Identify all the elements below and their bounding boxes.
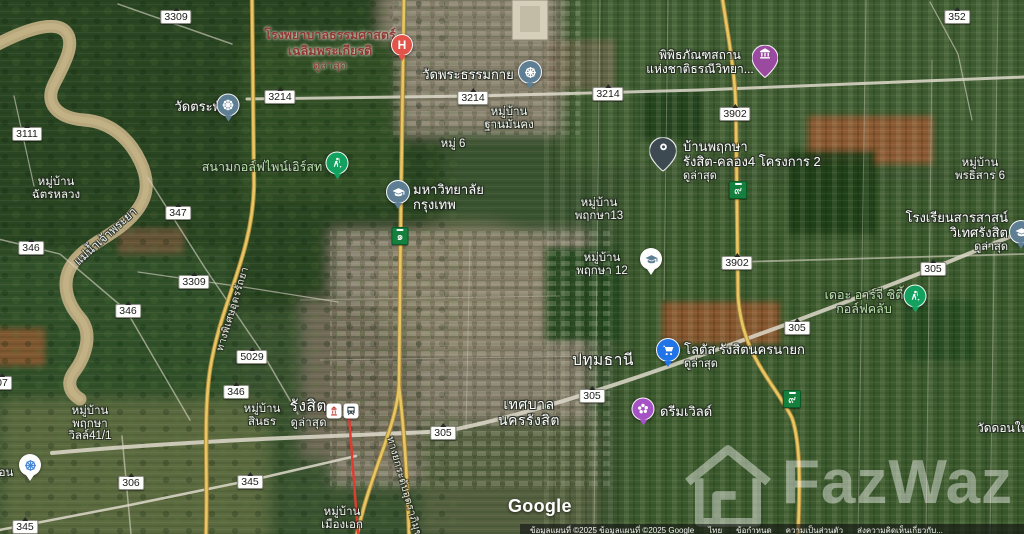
label-rg-city-golf[interactable]: เดอะ อาร์จี ซิตี้กอล์ฟคลับ (825, 288, 904, 316)
label-pinehurst-golf[interactable]: สนามกอล์ฟไพน์เอิร์สท (202, 160, 322, 174)
road-shield: 3902 (719, 107, 750, 121)
label-pornthisan-6: หมู่บ้านพรธิสาร 6 (955, 157, 1005, 182)
label-sarasas-school[interactable]: โรงเรียนสารสาสน์วิเทศรังสิตดูล่าสุด (905, 210, 1008, 255)
road-shield: 345 (12, 520, 38, 534)
road-shield: 5029 (236, 350, 267, 364)
attribution-link[interactable]: ข้อกำหนด (736, 526, 772, 534)
sarasas-school-marker[interactable] (1009, 220, 1024, 244)
cart-icon (656, 338, 680, 362)
label-rangsit-city-view-latest-link[interactable]: ดูล่าสุด (290, 415, 327, 432)
pruksa12-school-marker[interactable] (640, 248, 662, 270)
label-dream-world[interactable]: ดรีมเวิลด์ (660, 404, 712, 419)
label-pathum-thani: ปทุมธานี (572, 352, 634, 369)
wat-left-edge-marker[interactable] (19, 454, 41, 476)
road-shield: 347 (165, 206, 191, 220)
museum-marker[interactable] (752, 45, 778, 78)
label-sinthorn-village: หมู่บ้านสินธร (244, 403, 281, 428)
road-shield: 305 (579, 389, 605, 403)
road-shield: 346 (223, 385, 249, 399)
label-sarasas-school-view-latest-link[interactable]: ดูล่าสุด (905, 240, 1008, 255)
road-shield: 305 (784, 321, 810, 335)
label-thammasat-hospital[interactable]: โรงพยาบาลธรรมศาสตร์เฉลิมพระเกียรติดูล่าส… (264, 28, 395, 75)
dream-world-marker[interactable] (632, 398, 655, 421)
label-baan-pruksa-rangsit-view-latest-link[interactable]: ดูล่าสุด (683, 169, 821, 184)
label-rangsit-municipality: เทศบาลนครรังสิต (498, 396, 560, 428)
graduation-cap-icon (1009, 220, 1024, 244)
baan-pruksa-pin-marker[interactable] (650, 137, 677, 171)
google-logo[interactable]: Google (508, 496, 572, 517)
hospital-marker[interactable]: H (391, 34, 413, 56)
train-icon (344, 404, 359, 419)
dharma-wheel-icon (217, 94, 240, 117)
road-shield: 3309 (160, 10, 191, 24)
rangsit-shrine-marker[interactable] (327, 404, 342, 419)
road-shield: 352 (944, 10, 970, 24)
label-geology-museum[interactable]: พิพิธภัณฑสถานแห่งชาติธรณีวิทยา... (646, 49, 754, 76)
motorway-shield: ๑ (392, 227, 409, 245)
road-shield: 3214 (457, 91, 488, 105)
rg-city-golf-marker[interactable] (904, 285, 927, 308)
road-shield: 3111 (12, 127, 42, 141)
road-shield: 3309 (178, 275, 209, 289)
rangsit-station-marker[interactable] (344, 404, 359, 419)
label-moo-6: หมู่ 6 (441, 138, 466, 151)
label-lotus-rangsit-view-latest-link[interactable]: ดูล่าสุด (684, 357, 805, 372)
label-rangsit-city[interactable]: รังสิตดูล่าสุด (290, 398, 327, 432)
label-pruksa-13: หมู่บ้านพฤกษา13 (575, 197, 623, 222)
bangkok-university-marker[interactable] (386, 180, 410, 204)
attribution-link[interactable]: ไทย (708, 526, 722, 534)
golfer-icon (326, 152, 349, 175)
map-viewport[interactable]: FazWaz 330935232143214321439023111๙347๑3… (0, 0, 1024, 534)
label-lotus-rangsit[interactable]: โลตัส รังสิตนครนายกดูล่าสุด (684, 342, 805, 372)
label-baan-pruksa-rangsit[interactable]: บ้านพฤกษารังสิต-คลอง4 โครงการ 2ดูล่าสุด (683, 139, 821, 184)
road-shield: 305 (430, 426, 456, 440)
label-pruksa-ville-41-1: หมู่บ้านพฤกษาวิลล์41/1 (69, 405, 112, 443)
flower-icon (632, 398, 655, 421)
label-chat-luang: หมู่บ้านฉัตรหลวง (32, 176, 80, 201)
road-shield: 3214 (264, 90, 295, 104)
dharma-wheel-icon (518, 60, 542, 84)
label-muang-ake: หมู่บ้านเมืองเอก (321, 506, 363, 531)
road-shield: 346 (18, 241, 44, 255)
dhammakaya-temple-marker[interactable] (518, 60, 542, 84)
hospital-h-icon: H (391, 34, 413, 56)
road-shield: 346 (115, 304, 141, 318)
label-wat-don-yai[interactable]: วัดดอนใหญ่ (977, 422, 1024, 436)
pinehurst-golf-marker[interactable] (326, 152, 349, 175)
shrine-icon (327, 404, 342, 419)
road-shield: 3214 (592, 87, 623, 101)
road-shield: 3902 (721, 256, 752, 270)
label-bangkok-university[interactable]: มหาวิทยาลัยกรุงเทพ (413, 182, 484, 212)
wat-trapang-marker[interactable] (217, 94, 240, 117)
lotus-marker[interactable] (656, 338, 680, 362)
attribution-link[interactable]: ความเป็นส่วนตัว (786, 526, 843, 534)
dharma-wheel-icon (19, 454, 41, 476)
museum-icon (752, 45, 778, 78)
road-shield: 305 (920, 262, 946, 276)
label-wat-phra-dhammakaya[interactable]: วัดพระธรรมกาย (422, 67, 514, 82)
ring-icon (650, 137, 677, 171)
attribution-bar: ข้อมูลแผนที่ ©2025 ข้อมูลแผนที่ ©2025 Go… (520, 524, 1024, 534)
attribution-copyright: ข้อมูลแผนที่ ©2025 ข้อมูลแผนที่ ©2025 Go… (530, 526, 694, 534)
label-thammasat-hospital-view-latest-link[interactable]: ดูล่าสุด (264, 59, 395, 75)
label-pruksa-12: หมู่บ้านพฤกษา 12 (576, 252, 628, 277)
attribution-link[interactable]: ส่งความคิดเห็นเกี่ยวกับ... (857, 526, 943, 534)
label-baan-than-mankong: หมู่บ้านฐานมั่นคง (484, 106, 533, 131)
road-shield: 07 (0, 376, 12, 390)
road-shield: 345 (237, 475, 263, 489)
road-shield: 306 (118, 476, 144, 490)
graduation-cap-icon (386, 180, 410, 204)
label-left-edge-fragment: อน (0, 467, 13, 480)
motorway-shield: ๙ (783, 390, 801, 408)
golfer-icon (904, 285, 927, 308)
graduation-cap-icon (640, 248, 662, 270)
